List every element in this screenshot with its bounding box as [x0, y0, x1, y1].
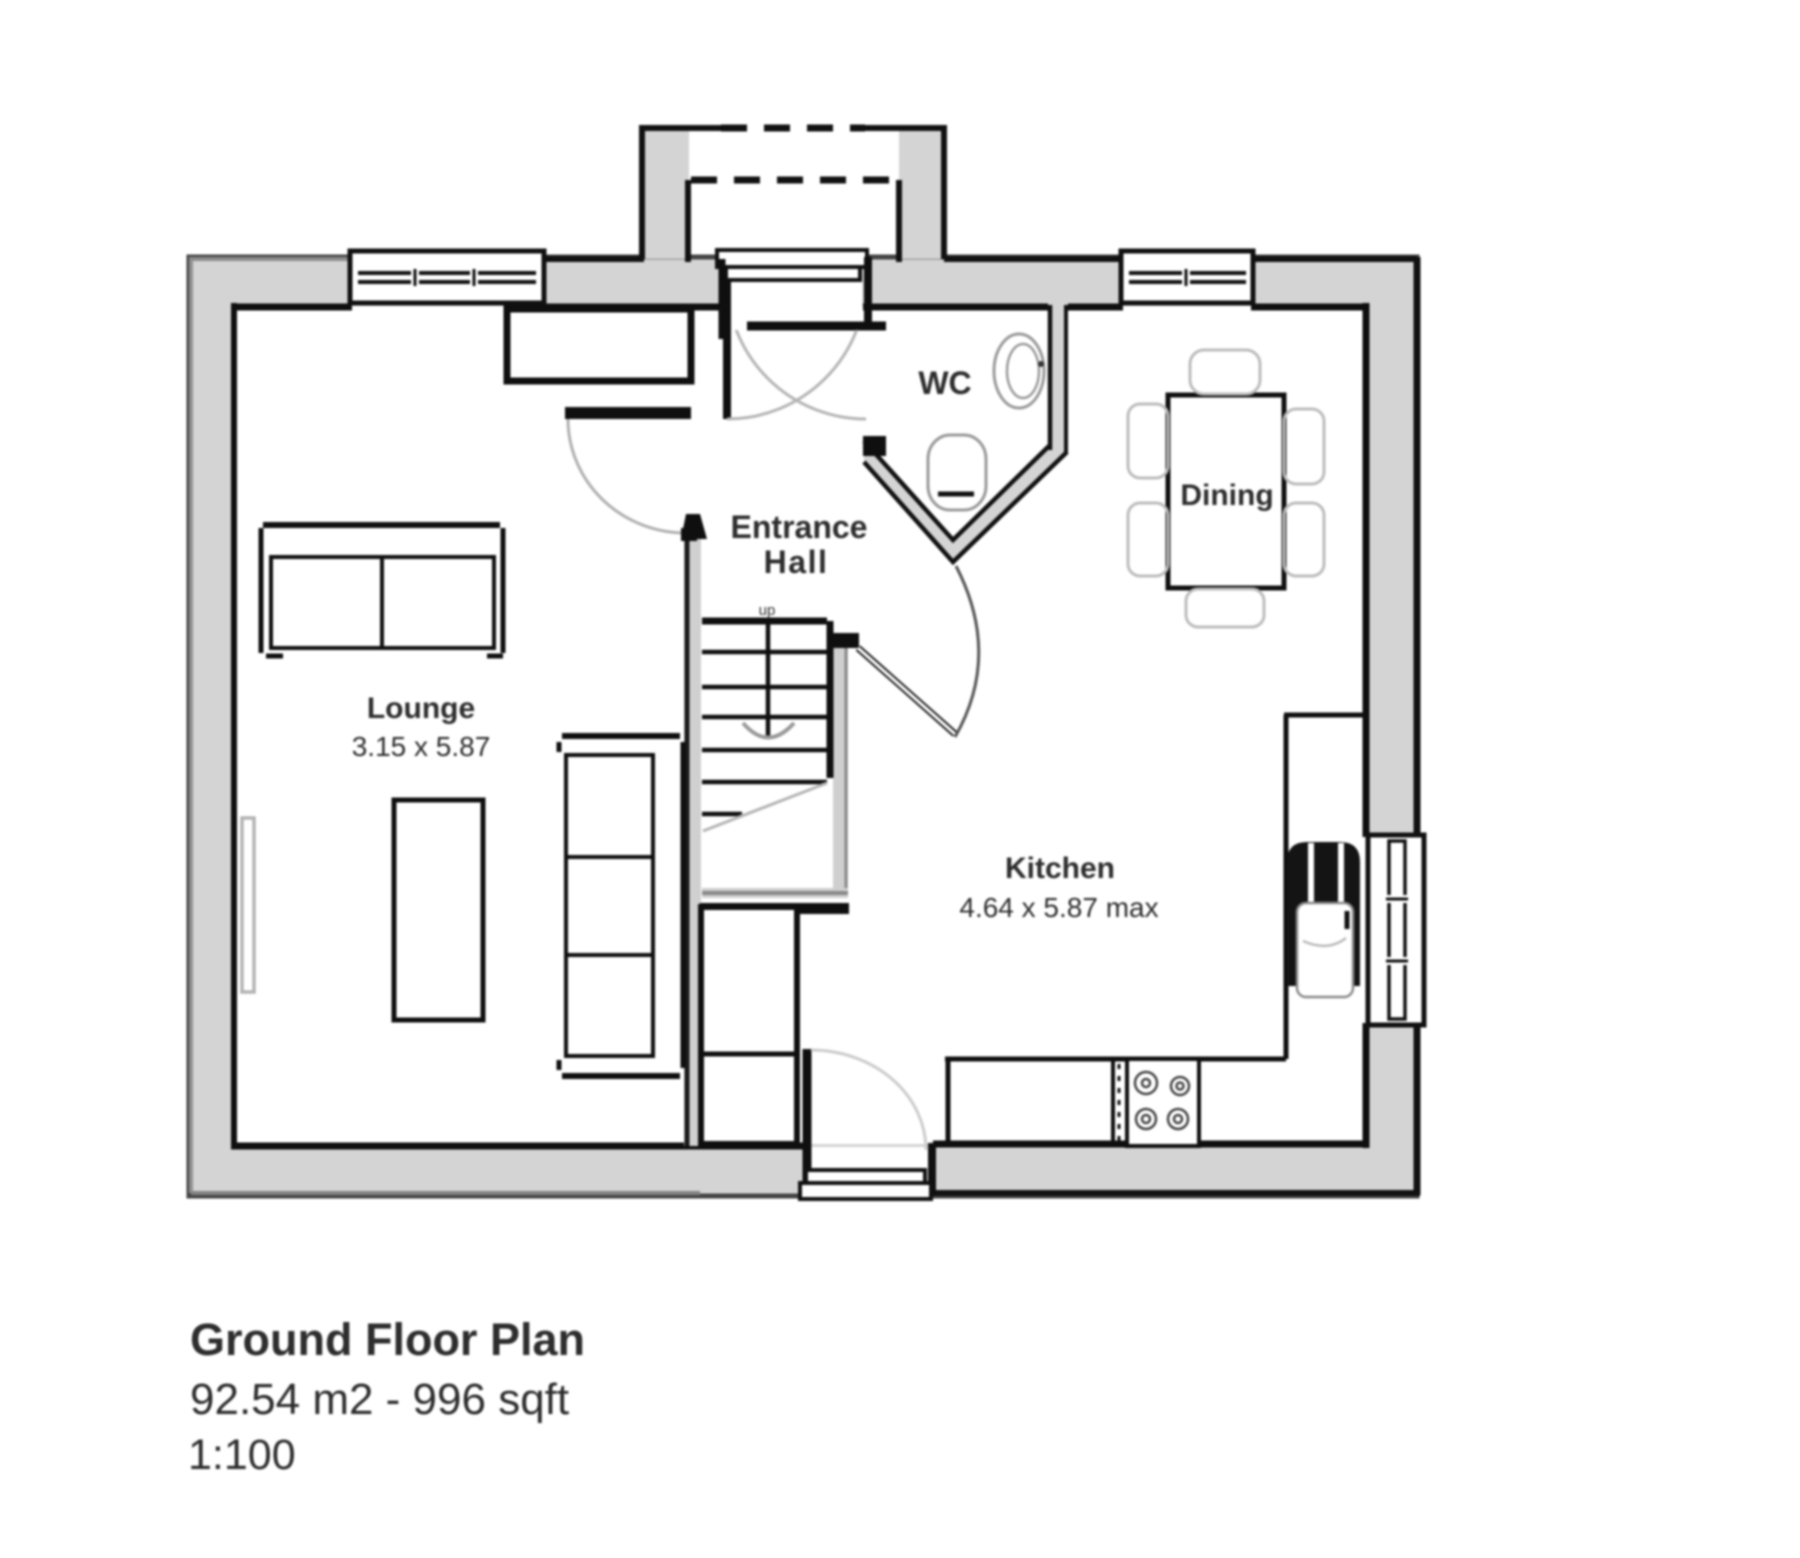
svg-text:Ground Floor Plan: Ground Floor Plan — [190, 1314, 585, 1365]
svg-text:Lounge: Lounge — [367, 692, 475, 725]
svg-text:1:100: 1:100 — [188, 1431, 296, 1479]
svg-text:Kitchen: Kitchen — [1005, 852, 1115, 885]
svg-text:Dining: Dining — [1180, 479, 1273, 512]
svg-text:WC: WC — [918, 365, 971, 401]
svg-text:up: up — [759, 602, 776, 619]
svg-text:92.54 m2 - 996 sqft: 92.54 m2 - 996 sqft — [190, 1375, 569, 1424]
svg-text:Hall: Hall — [764, 544, 829, 580]
svg-text:Entrance: Entrance — [731, 509, 868, 545]
svg-text:4.64 x 5.87 max: 4.64 x 5.87 max — [959, 892, 1158, 923]
svg-text:3.15 x 5.87: 3.15 x 5.87 — [352, 731, 491, 762]
